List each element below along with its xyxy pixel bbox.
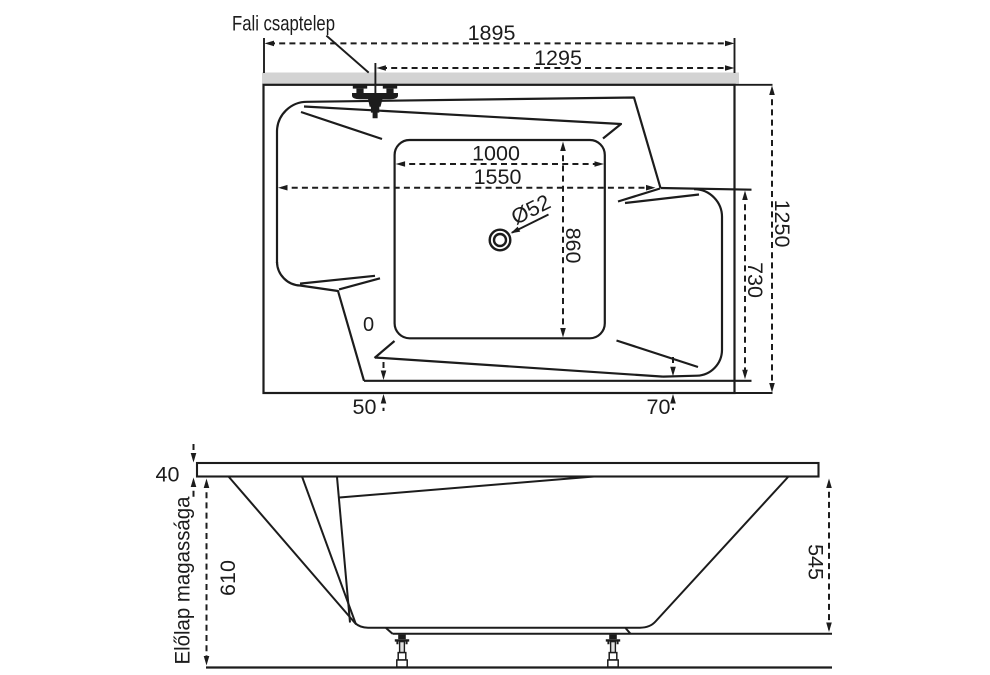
svg-text:730: 730 — [743, 262, 767, 298]
svg-text:Előlap magassága: Előlap magassága — [171, 496, 195, 664]
svg-text:860: 860 — [561, 228, 585, 264]
svg-text:0: 0 — [363, 314, 374, 336]
svg-text:1550: 1550 — [474, 165, 522, 189]
svg-text:Fali csaptelep: Fali csaptelep — [232, 12, 335, 36]
svg-text:40: 40 — [156, 463, 180, 487]
svg-text:50: 50 — [353, 395, 377, 419]
svg-text:1295: 1295 — [534, 46, 582, 70]
svg-text:1000: 1000 — [472, 142, 520, 166]
svg-text:70: 70 — [647, 395, 671, 419]
svg-text:545: 545 — [804, 544, 828, 580]
svg-text:1895: 1895 — [468, 21, 516, 45]
svg-text:1250: 1250 — [770, 200, 794, 248]
svg-text:610: 610 — [216, 560, 240, 596]
